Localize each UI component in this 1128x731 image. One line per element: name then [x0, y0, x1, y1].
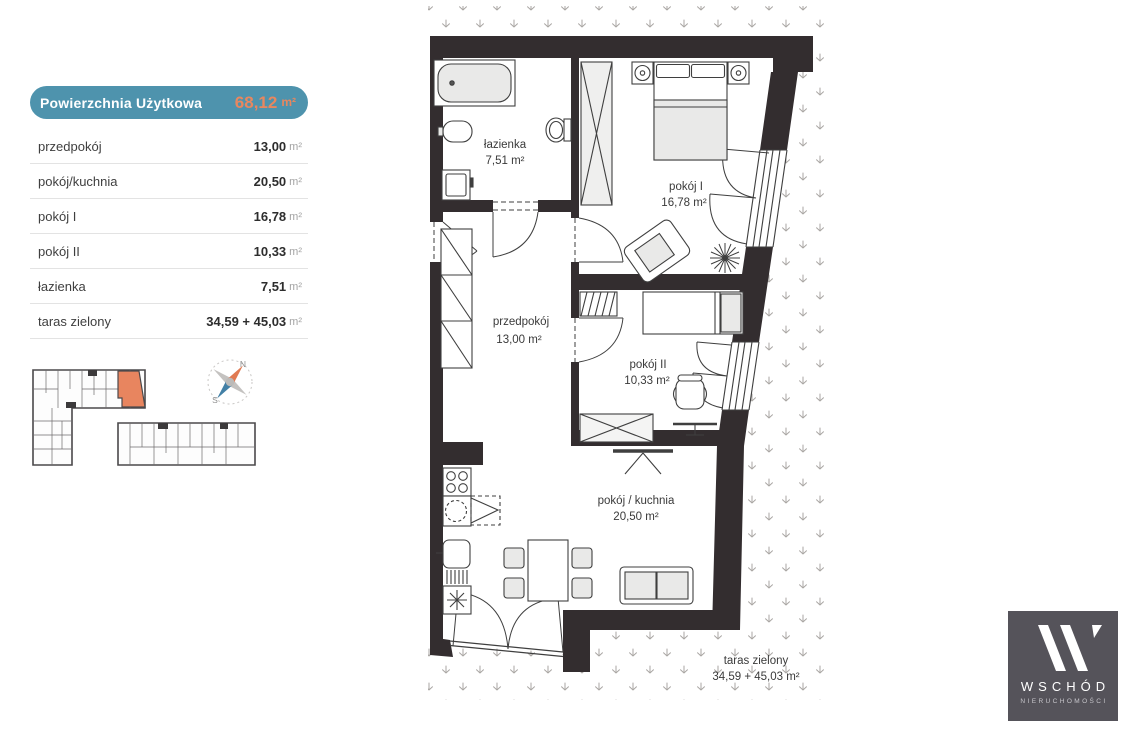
- table-row: pokój II10,33m²: [30, 234, 308, 269]
- double-bed: [654, 62, 727, 160]
- logo-text: WSCHÓD: [1016, 679, 1110, 694]
- toilet: [546, 118, 571, 142]
- room-label-pokoj1: pokój I: [669, 181, 703, 193]
- room-area-pokoj1: 16,78 m²: [661, 197, 707, 209]
- logo-mark: [1008, 611, 1118, 677]
- boiler-symbol: [443, 586, 471, 614]
- bathtub: [434, 60, 515, 106]
- area-table: przedpokój13,00m² pokój/kuchnia20,50m² p…: [30, 129, 308, 339]
- dining-table: [528, 540, 568, 601]
- room-area-pokoj2: 10,33 m²: [624, 375, 670, 387]
- sofa: [620, 567, 693, 604]
- compass-north-label: N: [240, 359, 246, 369]
- room-area-bathroom: 7,51 m²: [486, 155, 525, 167]
- plant-icon: [710, 243, 740, 273]
- door-pokoj1: [575, 218, 623, 262]
- tv: [613, 451, 673, 474]
- nightstand-lamp-left: [632, 62, 653, 84]
- hall-wardrobe: [441, 229, 472, 368]
- kitchen-hob: [443, 468, 471, 496]
- room-area-hall: 13,00 m²: [496, 334, 542, 346]
- balcony-door-pokoj1: [710, 149, 787, 247]
- room-label-hall: przedpokój: [493, 316, 549, 328]
- table-row: pokój I16,78m²: [30, 199, 308, 234]
- room-area-terrace: 34,59 + 45,03 m²: [712, 671, 799, 683]
- room-label-kitchen: pokój / kuchnia: [598, 495, 675, 507]
- logo-subtitle: NIERUCHOMOŚCI: [1018, 698, 1107, 705]
- bathroom-sink: [438, 121, 472, 142]
- wardrobe-hatched: [580, 292, 617, 316]
- room-label-bathroom: łazienka: [484, 139, 527, 151]
- table-row: taras zielony34,59 + 45,03m²: [30, 304, 308, 339]
- floor-plan: łazienka 7,51 m² pokój I 16,78 m² przedp…: [420, 0, 1010, 731]
- door-pokoj2: [575, 318, 623, 362]
- kitchen-oven: [443, 496, 471, 526]
- wardrobe-pokoj1: [581, 62, 612, 205]
- dishwasher: [447, 570, 467, 584]
- building-right: [118, 423, 255, 465]
- total-area-value: 68,12m²: [235, 93, 296, 113]
- area-summary-card: Powierzchnia Użytkowa 68,12m² przedpokój…: [30, 86, 308, 339]
- table-row: pokój/kuchnia20,50m²: [30, 164, 308, 199]
- room-area-kitchen: 20,50 m²: [613, 511, 659, 523]
- summary-title: Powierzchnia Użytkowa: [40, 95, 202, 111]
- room-label-terrace: taras zielony: [724, 655, 789, 667]
- nightstand-lamp-right: [728, 62, 749, 84]
- table-row: przedpokój13,00m²: [30, 129, 308, 164]
- company-logo: WSCHÓD NIERUCHOMOŚCI: [1008, 611, 1118, 721]
- table-row: łazienka7,51m²: [30, 269, 308, 304]
- area-summary-header: Powierzchnia Użytkowa 68,12m²: [30, 86, 308, 119]
- door-bathroom: [493, 202, 538, 257]
- washing-machine: [442, 170, 473, 200]
- dresser: [580, 414, 653, 442]
- desk-chair: [674, 375, 707, 409]
- page: Powierzchnia Użytkowa 68,12m² przedpokój…: [0, 0, 1128, 731]
- fridge: [471, 496, 500, 525]
- single-bed: [643, 292, 743, 334]
- compass-south-label: S: [212, 395, 218, 405]
- compass: N S: [203, 355, 257, 409]
- room-label-pokoj2: pokój II: [629, 359, 666, 371]
